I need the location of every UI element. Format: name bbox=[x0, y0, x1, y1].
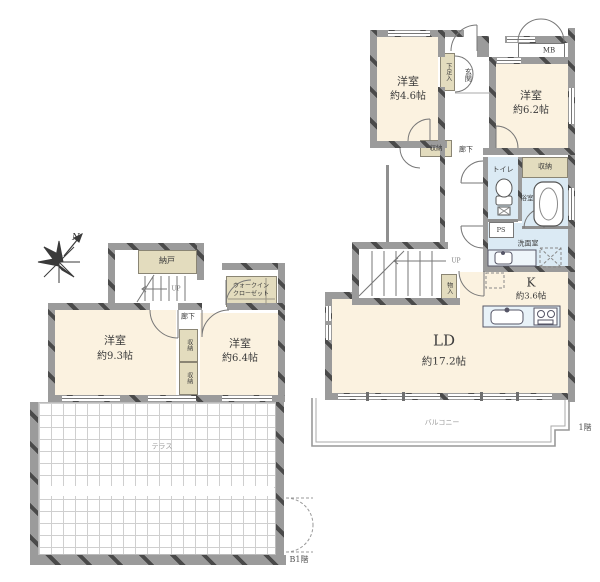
plan-linework: N bbox=[0, 0, 600, 582]
closet-label-b: 収納 bbox=[185, 372, 193, 384]
washing-machine-space bbox=[540, 248, 561, 267]
kitchen-label-name: K bbox=[527, 276, 536, 291]
room-label-bedroom62-size: 約6.2帖 bbox=[513, 105, 549, 118]
room-label-bedroom62-name: 洋室 bbox=[520, 89, 542, 103]
meter-box-label: MB bbox=[543, 47, 555, 56]
floor-label-1f: 1階 bbox=[578, 423, 591, 433]
stairs-1f bbox=[359, 251, 446, 296]
living-label-size: 約17.2帖 bbox=[422, 355, 466, 368]
room-label-nando: 納戸 bbox=[159, 256, 175, 266]
room-label-bedroom64-size: 約6.4帖 bbox=[222, 353, 258, 366]
room-label-wic-line1: ウォークイン bbox=[233, 282, 269, 290]
hall-closet-label: 収納 bbox=[430, 144, 443, 152]
room-label-bedroom93-size: 約9.3帖 bbox=[97, 351, 133, 364]
terrace-label: テラス bbox=[152, 443, 173, 452]
room-label-bedroom46-size: 約4.6帖 bbox=[390, 91, 426, 104]
shoe-box-label: 下足入 bbox=[444, 63, 452, 81]
vanity-sink-icon bbox=[488, 250, 536, 266]
floor-plan: N bbox=[0, 0, 600, 582]
ps-label: PS bbox=[497, 226, 506, 234]
entrance-label: 玄関 bbox=[464, 68, 473, 82]
compass-north-label: N bbox=[71, 233, 81, 243]
toilet-label: トイレ bbox=[493, 166, 514, 175]
stairs-up-label-1f: UP bbox=[451, 257, 460, 265]
bath-closet-label: 収納 bbox=[538, 163, 552, 172]
kitchen-counter-icon bbox=[483, 306, 560, 327]
door-arcs-1f bbox=[400, 19, 564, 296]
closet-label-a: 収納 bbox=[185, 339, 193, 351]
bathtub-icon bbox=[534, 182, 563, 226]
balcony-label: バルコニー bbox=[425, 419, 460, 428]
kitchen-label-size: 約3.6帖 bbox=[516, 292, 547, 303]
storage-small-label: 物入 bbox=[445, 282, 453, 294]
room-label-bedroom93-name: 洋室 bbox=[104, 334, 126, 348]
room-label-hallway-1f: 廊下 bbox=[459, 146, 473, 155]
stairs-up-label-b1: UP bbox=[171, 285, 180, 293]
washroom-label: 洗面室 bbox=[518, 240, 539, 249]
floor-label-b1: B1階 bbox=[290, 555, 309, 565]
toilet-icon bbox=[496, 179, 512, 215]
room-label-bedroom64-name: 洋室 bbox=[229, 337, 251, 351]
terrace-dashed-doors bbox=[286, 498, 313, 552]
room-label-wic-line2: クローゼット bbox=[233, 290, 269, 298]
room-label-hallway-b1: 廊下 bbox=[181, 313, 195, 322]
refrigerator-space bbox=[486, 273, 504, 288]
room-label-bedroom46-name: 洋室 bbox=[397, 75, 419, 89]
bath-label: 浴室 bbox=[521, 194, 534, 202]
living-label-name: LD bbox=[433, 332, 455, 351]
